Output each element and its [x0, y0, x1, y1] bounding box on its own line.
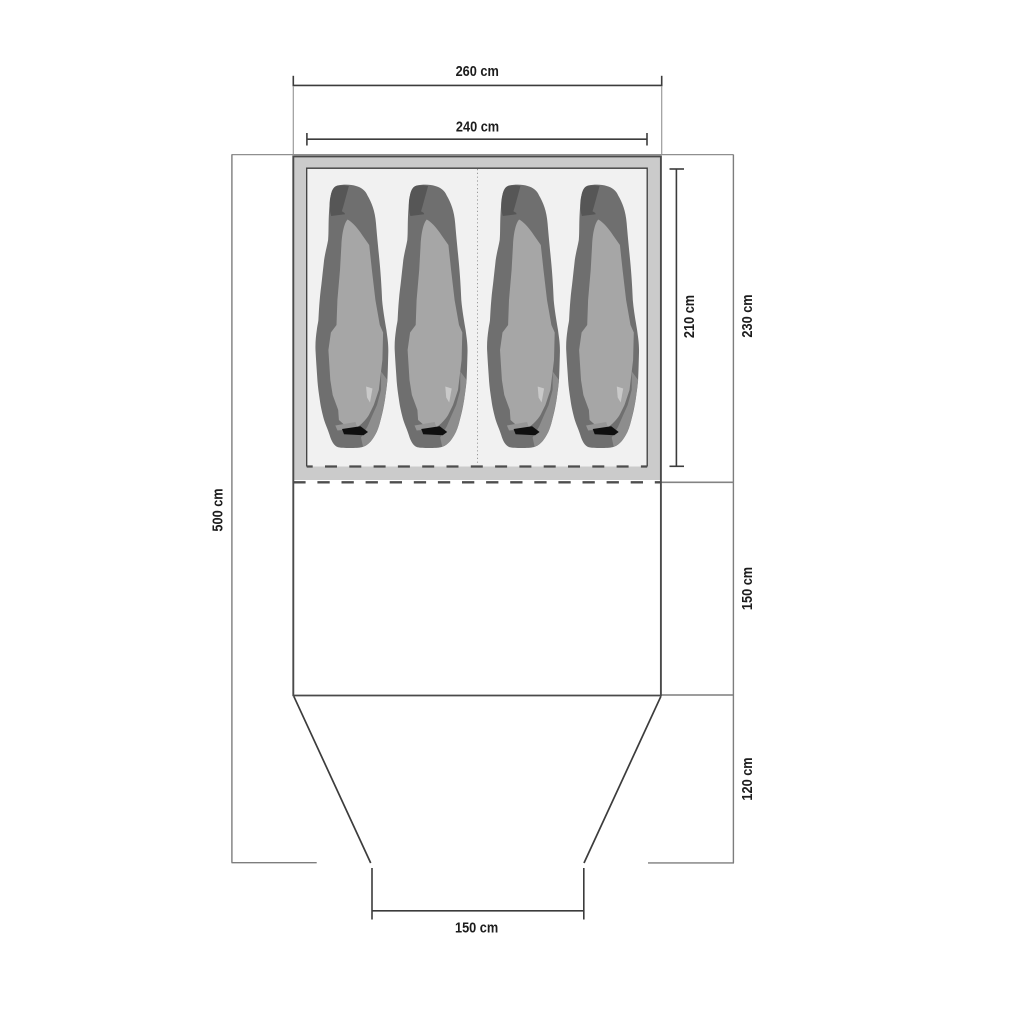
svg-text:150 cm: 150 cm [455, 920, 498, 936]
svg-text:260 cm: 260 cm [456, 63, 499, 79]
svg-text:240 cm: 240 cm [456, 119, 499, 135]
svg-text:500 cm: 500 cm [210, 488, 226, 531]
svg-text:230 cm: 230 cm [739, 294, 755, 337]
svg-text:150 cm: 150 cm [739, 567, 755, 610]
svg-text:210 cm: 210 cm [681, 295, 697, 338]
svg-text:120 cm: 120 cm [739, 757, 755, 800]
